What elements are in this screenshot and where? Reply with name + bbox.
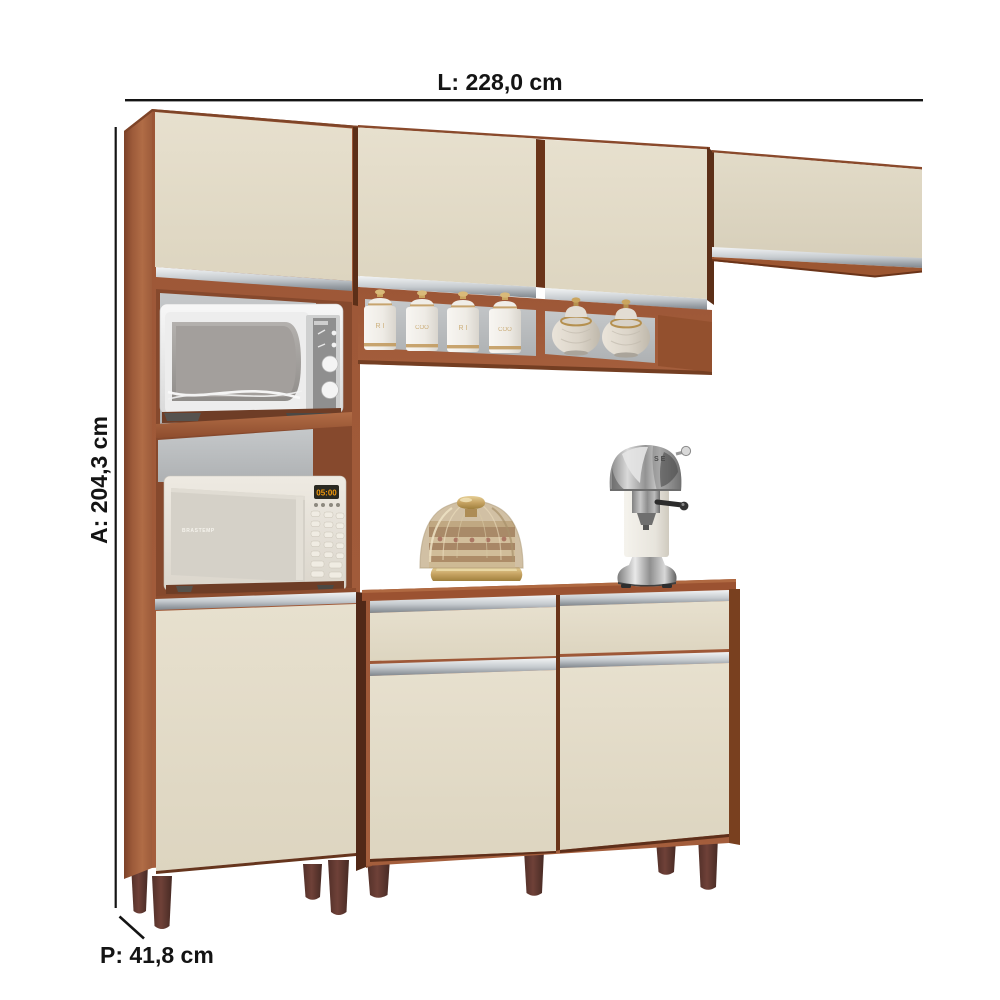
svg-text:A: 204,3 cm: A: 204,3 cm: [86, 416, 112, 544]
svg-text:COO: COO: [415, 325, 429, 331]
svg-text:L: 228,0 cm: L: 228,0 cm: [437, 69, 562, 95]
svg-text:05:00: 05:00: [316, 489, 337, 498]
svg-text:COO: COO: [498, 327, 512, 333]
svg-text:R I: R I: [376, 323, 385, 330]
svg-text:P: 41,8 cm: P: 41,8 cm: [100, 942, 214, 968]
svg-text:R I: R I: [459, 325, 468, 332]
svg-text:S E: S E: [654, 456, 666, 463]
svg-text:BRASTEMP: BRASTEMP: [182, 528, 215, 534]
